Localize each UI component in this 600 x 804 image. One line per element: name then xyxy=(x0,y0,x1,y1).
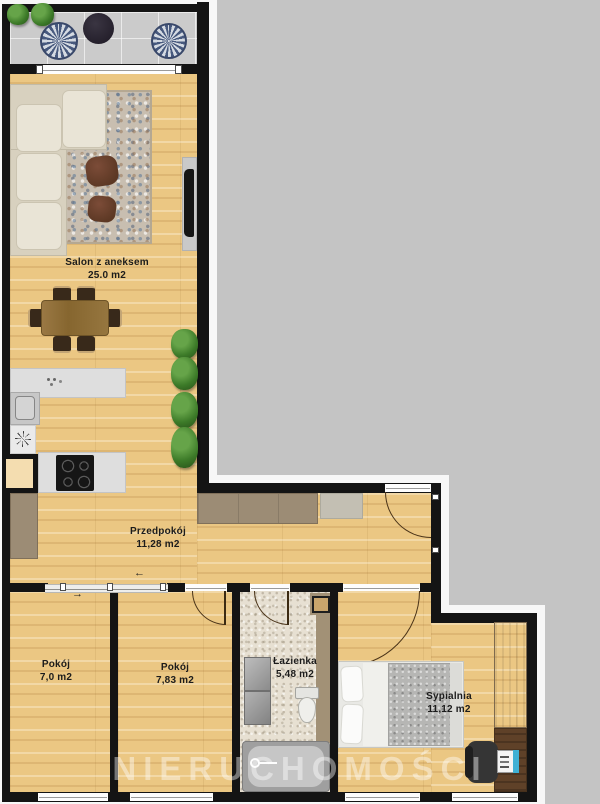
window-room-b xyxy=(130,793,213,801)
room-label-hallway: Przedpokój 11,28 m2 xyxy=(98,525,218,551)
sofa-cushion xyxy=(62,90,106,148)
door-hinge-mark xyxy=(432,494,439,500)
window-bedroom xyxy=(452,793,518,801)
door-opening-bathroom xyxy=(250,584,290,591)
window-frame-mark xyxy=(175,65,182,74)
door-leaf-room-b xyxy=(224,591,226,625)
wall-hallway-right xyxy=(431,483,441,623)
room-name: Łazienka xyxy=(245,655,345,668)
room-label-bathroom: Łazienka 5,48 m2 xyxy=(245,655,345,681)
sofa-cushion xyxy=(16,202,62,250)
lounge-chair-icon xyxy=(151,23,187,59)
sliding-door-arrow-icon: → xyxy=(72,589,83,600)
dining-table xyxy=(41,300,109,336)
cooktop xyxy=(56,455,94,491)
wall-balcony-right xyxy=(197,2,209,72)
room-area: 7,83 m2 xyxy=(125,674,225,687)
wall-rooms-top xyxy=(420,583,441,592)
wall-rooms-top xyxy=(167,583,185,592)
window-frame-mark xyxy=(36,65,43,74)
sliding-door-mark xyxy=(160,583,166,591)
plant-icon xyxy=(171,357,198,390)
room-name: Sypialnia xyxy=(399,690,499,703)
plant-icon xyxy=(7,4,29,25)
room-label-bedroom: Sypialnia 11,12 m2 xyxy=(399,690,499,716)
coffee-table-icon xyxy=(83,13,114,44)
tv-icon xyxy=(184,169,194,237)
door-opening-entrance xyxy=(385,484,431,492)
floor-plan: → ← xyxy=(0,0,600,804)
room-area: 7,0 m2 xyxy=(6,671,106,684)
room-label-room-a: Pokój 7,0 m2 xyxy=(6,658,106,684)
window-balcony xyxy=(36,65,182,74)
lounge-chair-icon xyxy=(40,22,78,60)
starburst-icon xyxy=(15,431,31,447)
room-name: Salon z aneksem xyxy=(47,256,167,269)
room-label-salon: Salon z aneksem 25.0 m2 xyxy=(47,256,167,282)
door-leaf-bathroom xyxy=(287,591,289,625)
room-label-room-b: Pokój 7,83 m2 xyxy=(125,661,225,687)
bed-sheet xyxy=(363,663,388,746)
doormat xyxy=(320,493,363,519)
wall-left xyxy=(2,64,10,802)
pouf xyxy=(87,195,118,224)
room-area: 25.0 m2 xyxy=(47,269,167,282)
wardrobe xyxy=(10,493,38,559)
window-bedroom xyxy=(345,793,420,801)
door-opening-bedroom xyxy=(343,584,420,591)
room-area: 11,28 m2 xyxy=(98,538,218,551)
wardrobe xyxy=(197,493,318,524)
room-name: Pokój xyxy=(125,661,225,674)
plant-icon xyxy=(171,427,198,468)
dining-chair xyxy=(77,336,95,353)
plant-icon xyxy=(171,392,198,428)
room-area: 11,12 m2 xyxy=(399,703,499,716)
wall-living-right xyxy=(197,70,209,493)
sliding-door-mark xyxy=(107,583,113,591)
faucet-icon xyxy=(47,378,50,381)
corner-cabinet xyxy=(6,459,33,488)
kitchen-sink-basin xyxy=(15,396,35,420)
door-opening-room-b xyxy=(185,584,227,591)
door-hinge-mark xyxy=(432,547,439,553)
pillow xyxy=(340,703,364,744)
room-area: 5,48 m2 xyxy=(245,668,345,681)
watermark: NIERUCHOMOŚCI xyxy=(0,750,600,788)
window-room-a xyxy=(38,793,108,801)
bathroom-cabinet xyxy=(312,596,330,613)
sliding-door-mark xyxy=(60,583,66,591)
plant-icon xyxy=(171,329,198,359)
sofa-cushion xyxy=(16,153,62,201)
washing-machine xyxy=(244,691,271,725)
sofa-cushion xyxy=(16,104,62,152)
room-name: Przedpokój xyxy=(98,525,218,538)
room-name: Pokój xyxy=(6,658,106,671)
sliding-door-arrow-icon: ← xyxy=(134,568,145,579)
wall-rooms-top xyxy=(2,583,48,592)
dining-chair xyxy=(53,336,71,353)
